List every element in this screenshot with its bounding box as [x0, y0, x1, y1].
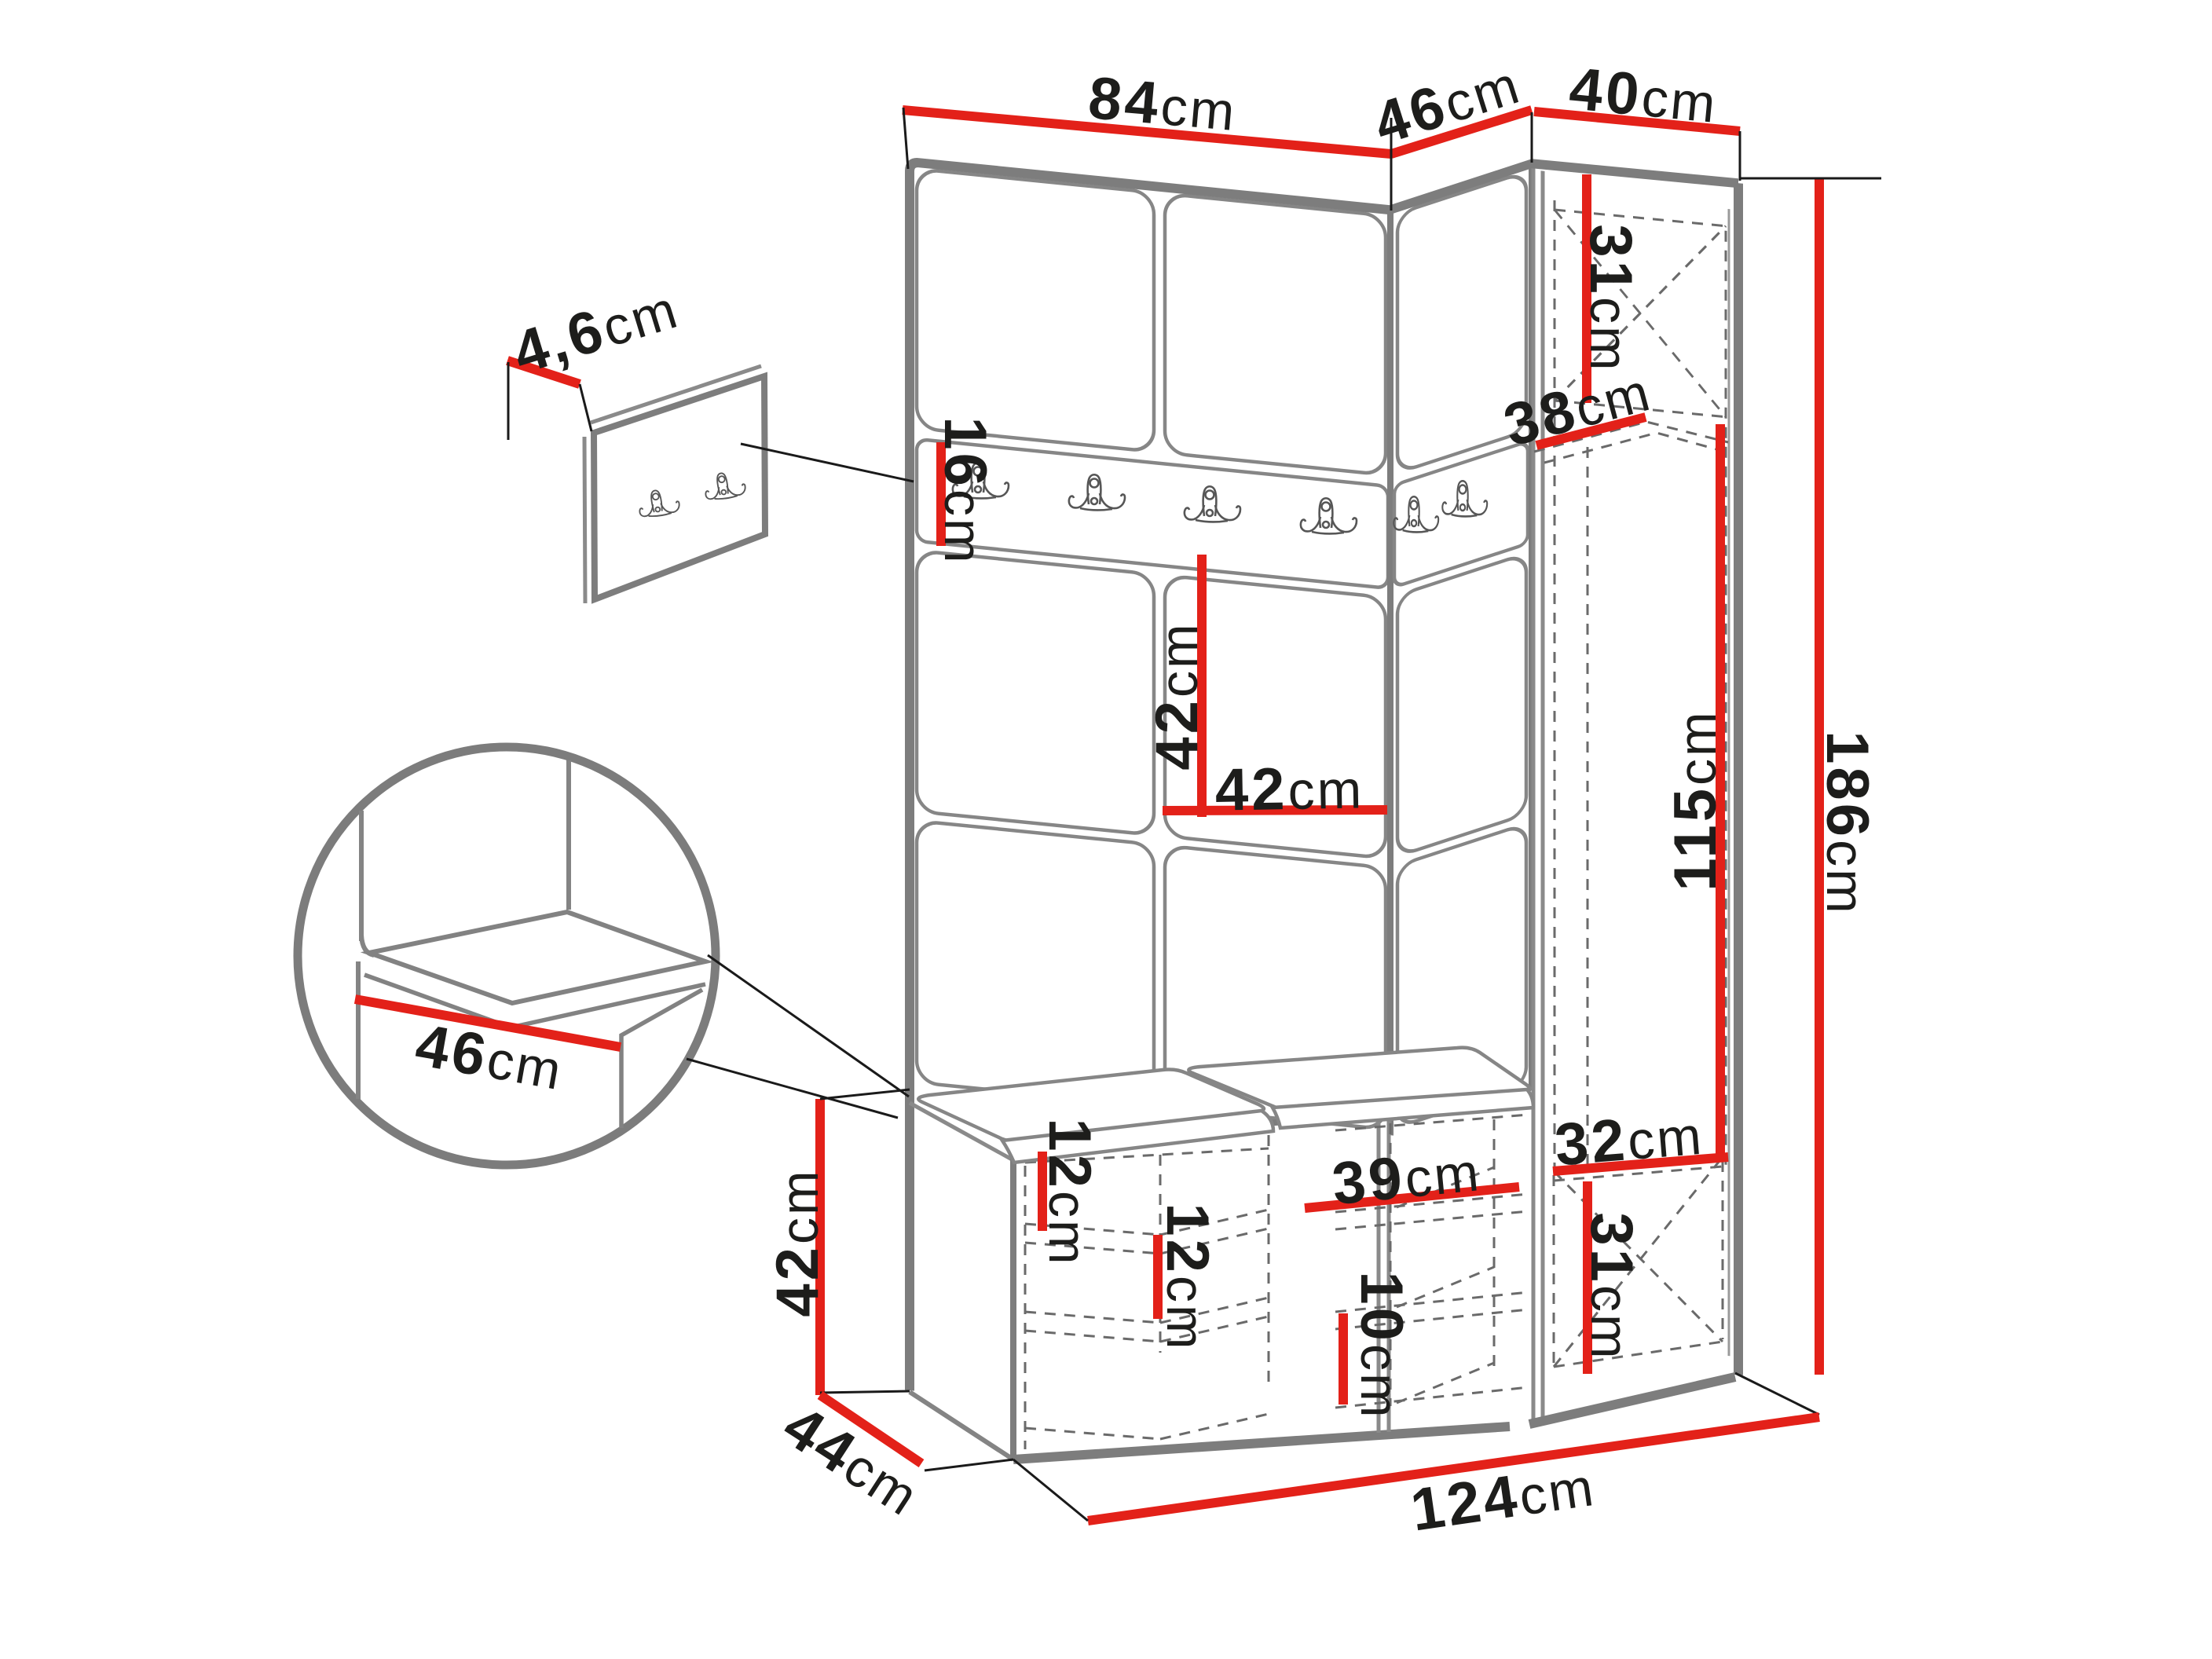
svg-text:12cm: 12cm: [1036, 1118, 1103, 1266]
svg-text:42cm: 42cm: [1214, 754, 1364, 823]
svg-text:31cm: 31cm: [1577, 224, 1644, 372]
svg-text:186cm: 186cm: [1814, 731, 1881, 915]
svg-text:10cm: 10cm: [1348, 1271, 1415, 1419]
svg-text:16cm: 16cm: [932, 416, 998, 565]
svg-text:32cm: 32cm: [1552, 1101, 1705, 1179]
svg-text:31cm: 31cm: [1578, 1212, 1645, 1361]
svg-text:42cm: 42cm: [764, 1168, 831, 1317]
svg-text:42cm: 42cm: [1144, 621, 1210, 770]
svg-text:12cm: 12cm: [1154, 1203, 1221, 1351]
svg-text:115cm: 115cm: [1662, 709, 1729, 891]
